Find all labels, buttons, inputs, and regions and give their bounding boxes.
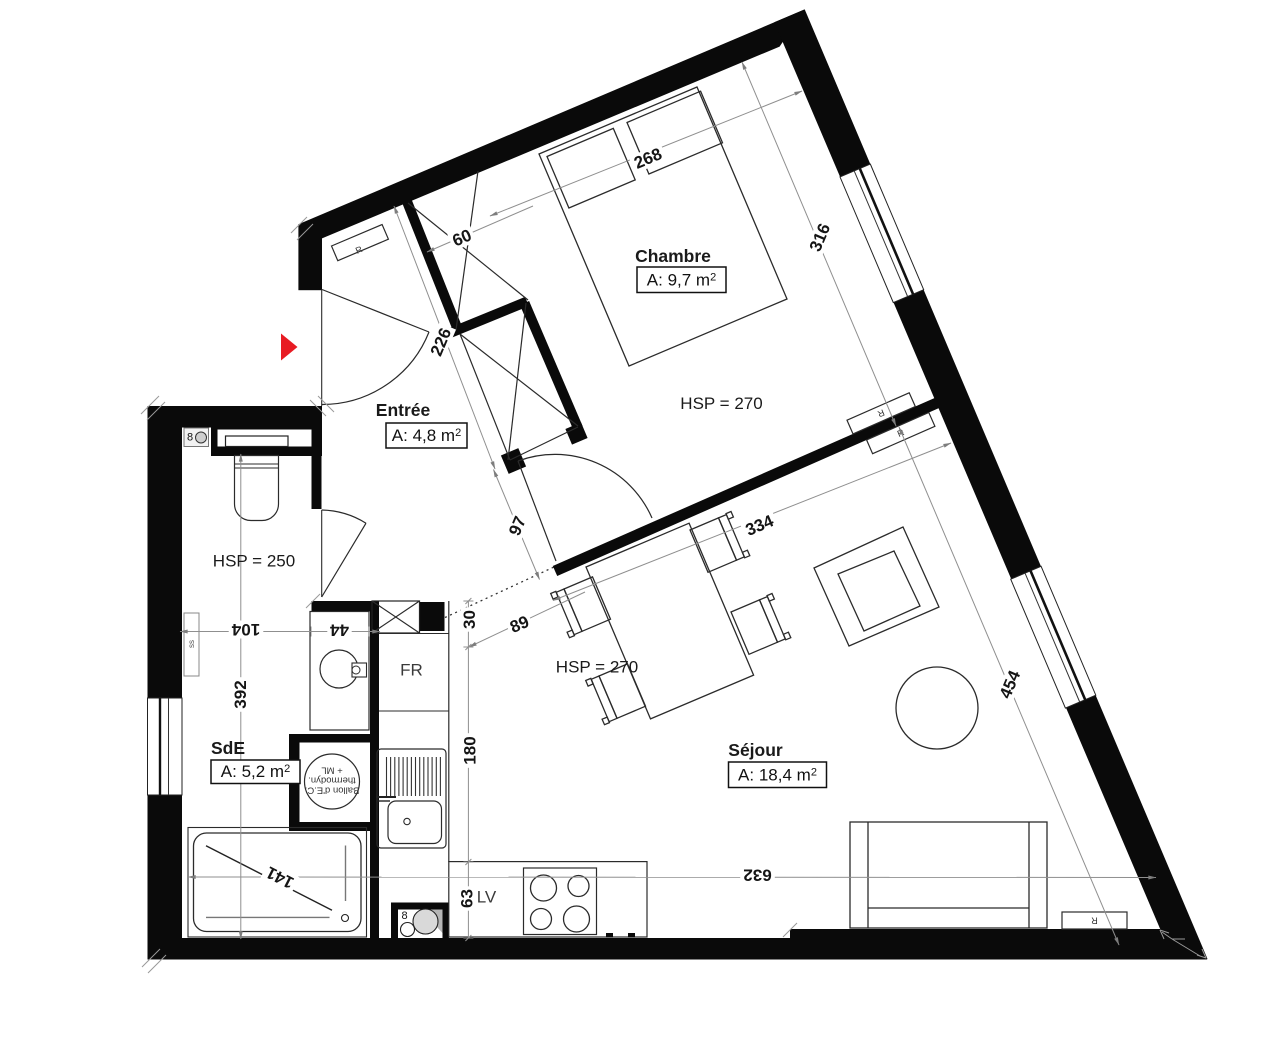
svg-text:SdE: SdE bbox=[211, 738, 245, 758]
svg-text:44: 44 bbox=[330, 621, 349, 640]
svg-text:104: 104 bbox=[231, 620, 260, 639]
svg-text:Séjour: Séjour bbox=[728, 740, 783, 760]
svg-text:A: 5,2 m2: A: 5,2 m2 bbox=[221, 762, 290, 781]
svg-text:8: 8 bbox=[401, 910, 407, 922]
svg-text:HSP = 250: HSP = 250 bbox=[213, 552, 295, 571]
svg-text:A: 9,7 m2: A: 9,7 m2 bbox=[647, 271, 716, 290]
svg-text:HSP = 270: HSP = 270 bbox=[556, 658, 638, 677]
svg-text:A: 4,8 m2: A: 4,8 m2 bbox=[392, 426, 461, 445]
svg-text:LV: LV bbox=[477, 888, 497, 907]
svg-text:FR: FR bbox=[400, 661, 423, 680]
svg-text:Entrée: Entrée bbox=[376, 400, 431, 420]
svg-text:Chambre: Chambre bbox=[635, 246, 711, 266]
svg-text:632: 632 bbox=[743, 866, 771, 885]
svg-text:+ ML: + ML bbox=[321, 765, 342, 776]
svg-text:392: 392 bbox=[231, 680, 250, 708]
svg-text:A: 18,4 m2: A: 18,4 m2 bbox=[738, 766, 817, 785]
svg-text:R: R bbox=[1091, 916, 1098, 926]
svg-text:180: 180 bbox=[461, 736, 480, 764]
svg-text:8: 8 bbox=[187, 432, 193, 444]
svg-text:63: 63 bbox=[458, 889, 477, 908]
svg-text:30: 30 bbox=[460, 610, 479, 629]
svg-text:ss: ss bbox=[187, 640, 196, 648]
svg-text:HSP = 270: HSP = 270 bbox=[680, 394, 762, 413]
